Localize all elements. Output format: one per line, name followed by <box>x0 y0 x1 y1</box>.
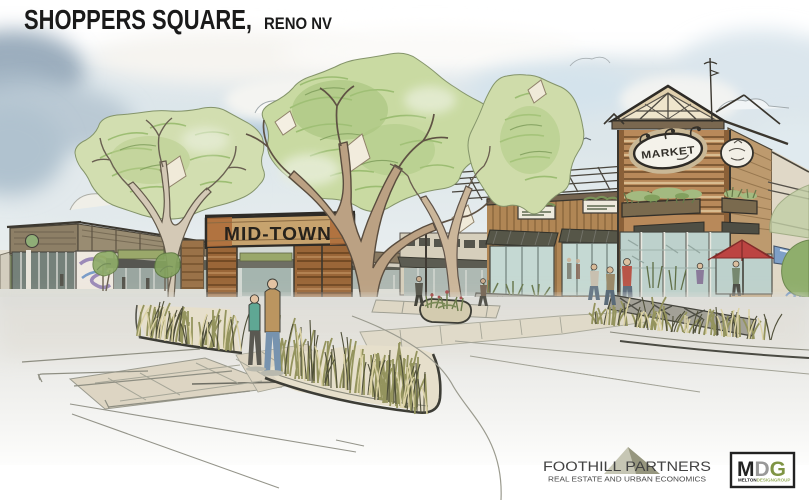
svg-text:MELTONDESIGNGROUP: MELTONDESIGNGROUP <box>738 478 790 483</box>
svg-text:REAL ESTATE AND URBAN ECONOMIC: REAL ESTATE AND URBAN ECONOMICS <box>548 477 706 484</box>
svg-text:SHOPPERS SQUARE,: SHOPPERS SQUARE, <box>24 4 252 35</box>
svg-text:MID-TOWN: MID-TOWN <box>224 224 332 244</box>
svg-text:FOOTHILL PARTNERS: FOOTHILL PARTNERS <box>543 459 711 474</box>
svg-text:RENO NV: RENO NV <box>264 15 332 33</box>
